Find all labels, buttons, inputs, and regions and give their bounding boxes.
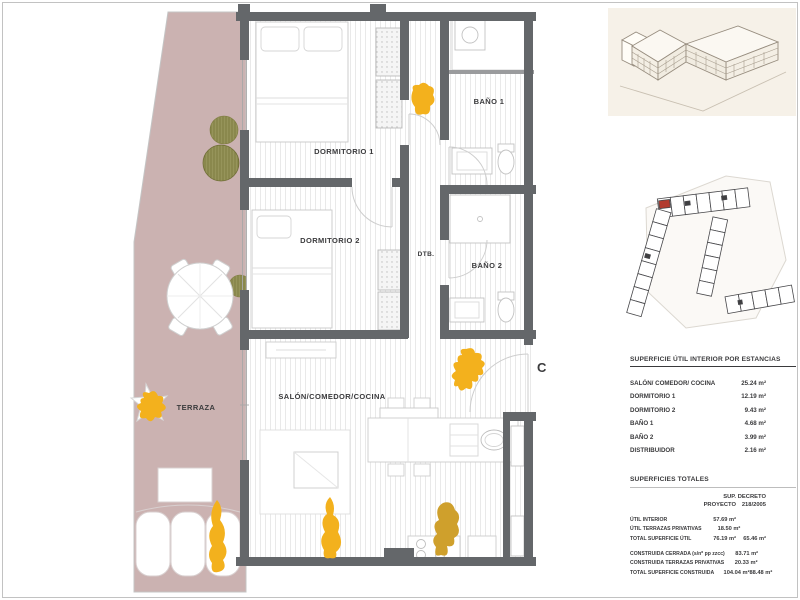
room-terraza [131, 12, 251, 592]
unit-location-marker [659, 199, 671, 208]
room-label-bano2: BAÑO 2 [472, 261, 503, 270]
row-value: 88.48 m² [749, 570, 772, 576]
column-header: SUP.PROYECTO [700, 494, 736, 510]
row-value: 25.24 m² [726, 380, 766, 387]
row-label: DORMITORIO 1 [630, 393, 726, 400]
table-superficie-util: SUPERFICIE ÚTIL INTERIOR POR ESTANCIAS S… [630, 356, 796, 454]
row-value: 20.33 m² [735, 560, 758, 566]
unit-letter: C [537, 360, 547, 375]
room-label-salon: SALÓN/COMEDOR/COCINA [278, 392, 385, 401]
room-label-dormitorio1: DORMITORIO 1 [314, 147, 374, 156]
row-label: TOTAL SUPERFICIE ÚTIL [630, 536, 693, 542]
table-row: ÚTIL TERRAZAS PRIVATIVAS18.50 m² [630, 526, 796, 532]
bed-dormitorio2 [252, 210, 332, 328]
bed-dormitorio1 [256, 22, 348, 142]
row-label: TOTAL SUPERFICIE CONSTRUIDA [630, 570, 714, 576]
table-row: ÚTIL INTERIOR57.69 m² [630, 517, 796, 523]
area-tables-panel: SUPERFICIE ÚTIL INTERIOR POR ESTANCIAS S… [630, 356, 796, 460]
table-superficies-totales: SUPERFICIES TOTALES SUP.PROYECTO DECRETO… [630, 476, 796, 580]
divider [630, 487, 796, 488]
row-value: 57.69 m² [700, 517, 736, 523]
room-label-dtb: DTB. [418, 251, 435, 258]
table-row: TOTAL SUPERFICIE ÚTIL76.19 m²65.46 m² [630, 536, 796, 542]
table-row: DORMITORIO 29.43 m² [630, 407, 796, 414]
salon-sideboard [266, 342, 336, 358]
row-value: 76.19 m² [700, 536, 736, 542]
row-value: 2.16 m² [726, 447, 766, 454]
row-value: 3.99 m² [726, 434, 766, 441]
row-value: 12.19 m² [726, 393, 766, 400]
row-value: 83.71 m² [735, 551, 758, 557]
terrace-table [167, 258, 233, 336]
row-value: 65.46 m² [736, 536, 766, 542]
row-value: 18.50 m² [710, 526, 741, 532]
location-keyplan [627, 176, 795, 328]
row-value: 4.68 m² [726, 420, 766, 427]
kitchen-counter [368, 418, 518, 462]
table-row: CONSTRUIDA CERRADA (s/nº pp zzcc)83.71 m… [630, 551, 796, 557]
table-row: BAÑO 23.99 m² [630, 434, 796, 441]
row-label: DISTRIBUIDOR [630, 447, 726, 454]
table-row: SALÓN/ COMEDOR/ COCINA25.24 m² [630, 380, 796, 387]
room-label-dormitorio2: DORMITORIO 2 [300, 236, 360, 245]
row-label: ÚTIL INTERIOR [630, 517, 693, 523]
room-label-bano1: BAÑO 1 [474, 97, 505, 106]
table-row: CONSTRUIDA TERRAZAS PRIVATIVAS20.33 m² [630, 560, 796, 566]
row-label: CONSTRUIDA TERRAZAS PRIVATIVAS [630, 560, 724, 566]
laundry-closet [448, 16, 534, 74]
row-label: CONSTRUIDA CERRADA (s/nº pp zzcc) [630, 551, 725, 557]
salon-sofa-area [260, 430, 350, 514]
building-render-sketch [608, 8, 796, 116]
floorplan-sheet: DORMITORIO 1 DORMITORIO 2 BAÑO 1 BAÑO 2 … [0, 0, 800, 600]
row-label: DORMITORIO 2 [630, 407, 726, 414]
row-label: BAÑO 1 [630, 420, 726, 427]
table-title: SUPERFICIES TOTALES [630, 476, 796, 483]
table-title: SUPERFICIE ÚTIL INTERIOR POR ESTANCIAS [630, 356, 796, 367]
table-row: DISTRIBUIDOR2.16 m² [630, 447, 796, 454]
table-row: BAÑO 14.68 m² [630, 420, 796, 427]
table-column-headers: SUP.PROYECTO DECRETO218/2005 [630, 494, 796, 510]
row-label: ÚTIL TERRAZAS PRIVATIVAS [630, 526, 702, 532]
table-row: TOTAL SUPERFICIE CONSTRUIDA104.04 m²88.4… [630, 570, 796, 576]
row-value: 9.43 m² [726, 407, 766, 414]
column-header: DECRETO218/2005 [736, 494, 766, 510]
table-row: DORMITORIO 112.19 m² [630, 393, 796, 400]
row-label: SALÓN/ COMEDOR/ COCINA [630, 380, 726, 387]
row-value: 104.04 m² [724, 570, 750, 576]
row-label: BAÑO 2 [630, 434, 726, 441]
room-label-terraza: TERRAZA [177, 403, 216, 412]
